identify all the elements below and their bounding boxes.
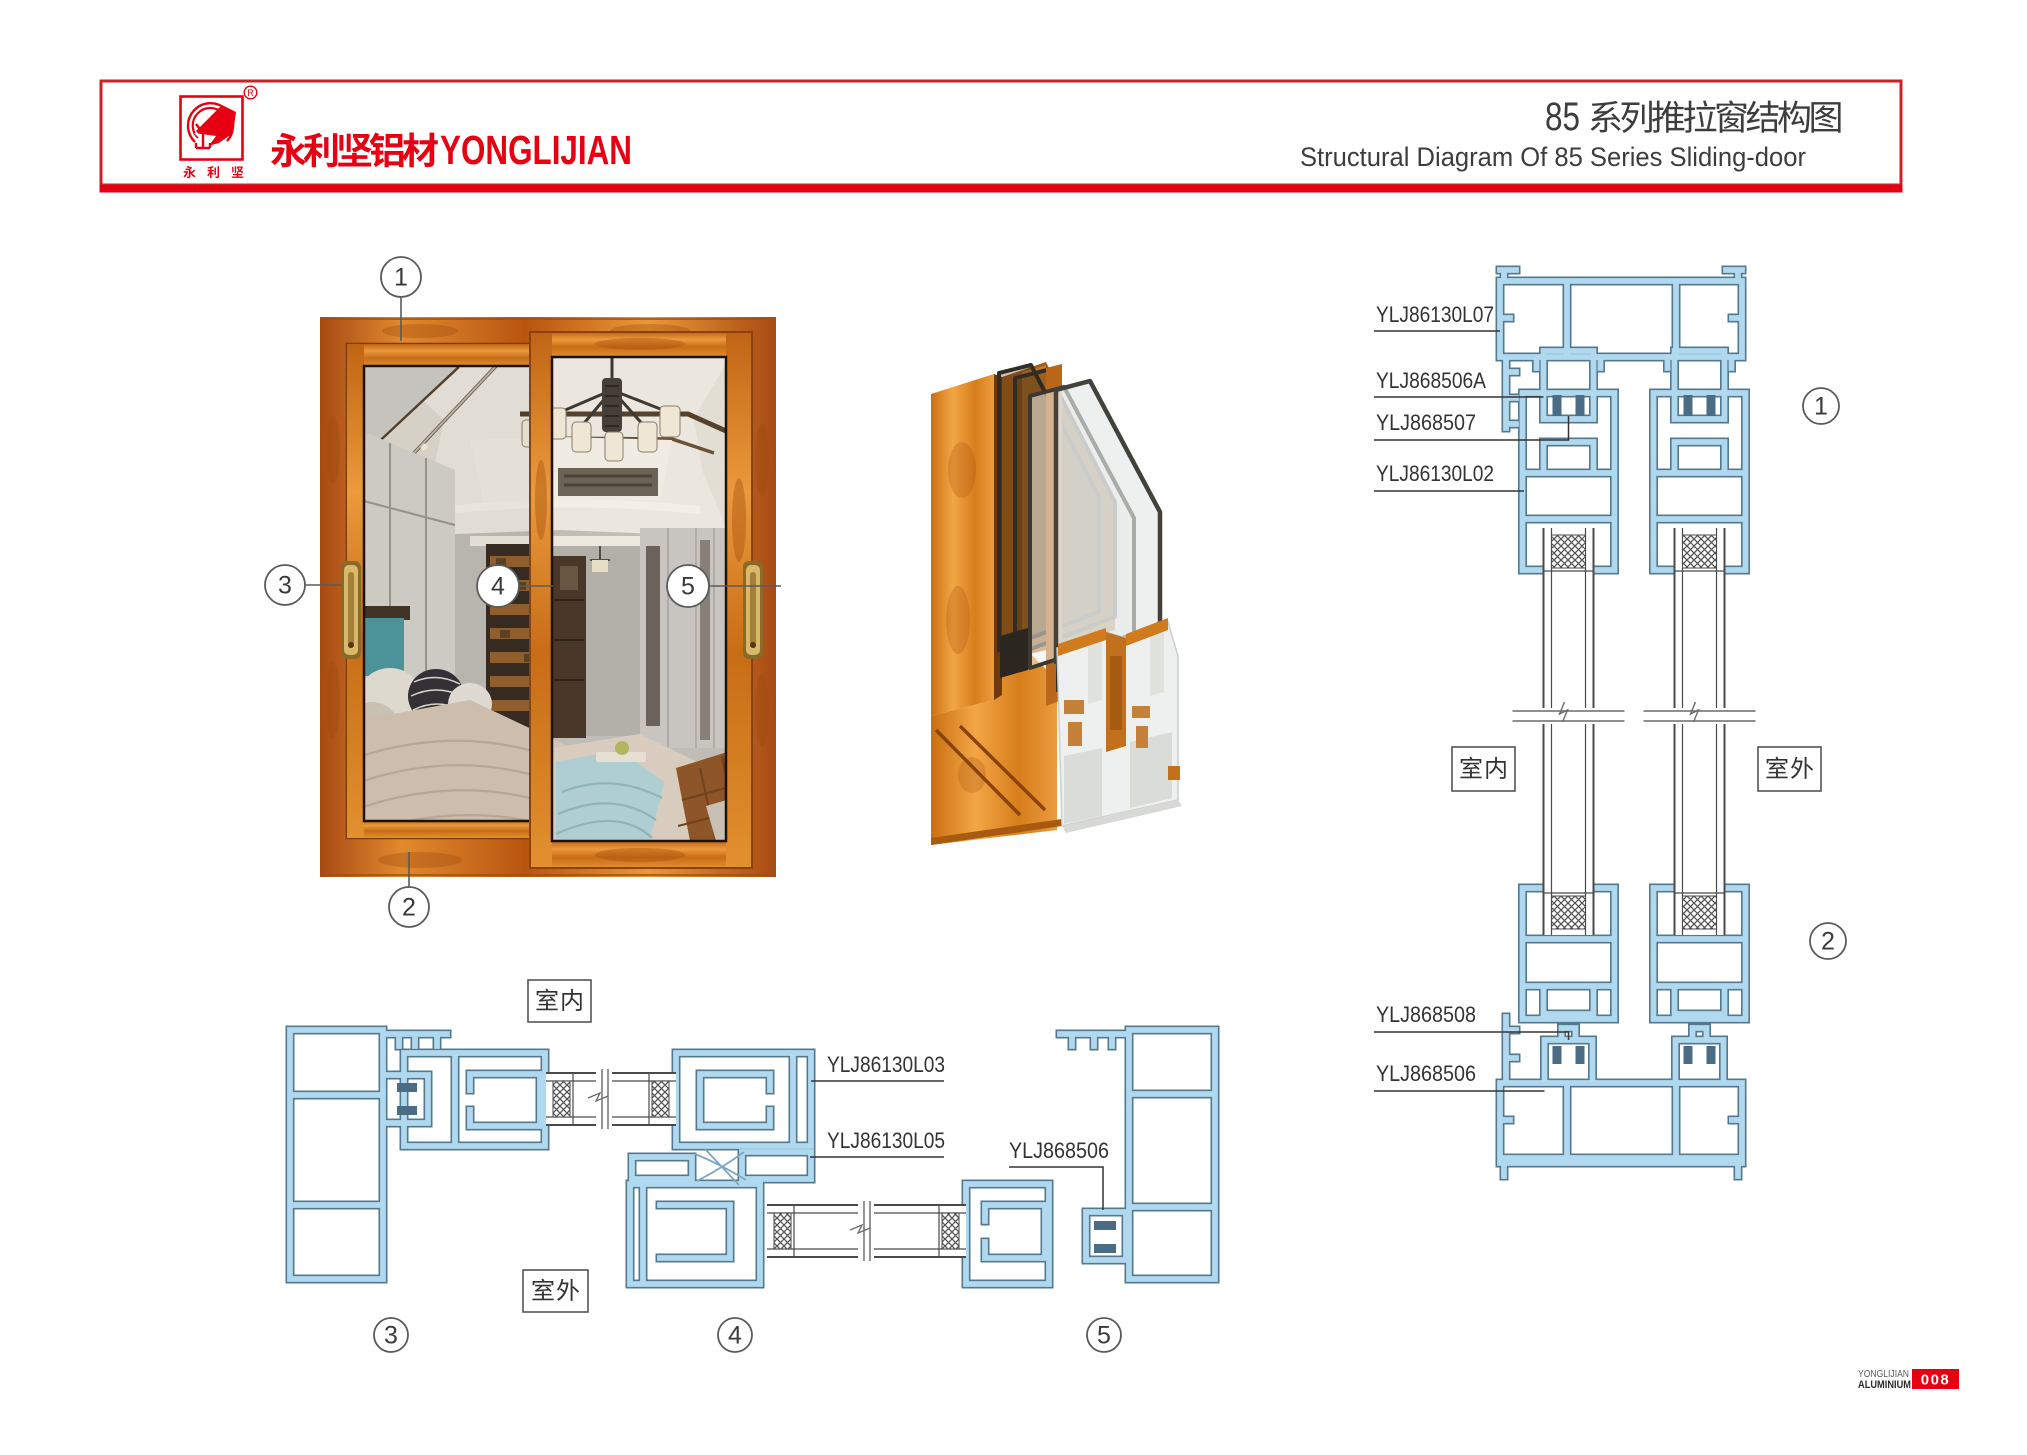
svg-text:1: 1 — [1814, 393, 1828, 421]
svg-text:YLJ86130L03: YLJ86130L03 — [827, 1052, 945, 1077]
svg-text:008: 008 — [1921, 1372, 1951, 1389]
svg-text:YONGLIJIAN: YONGLIJIAN — [440, 127, 632, 173]
svg-text:R: R — [247, 88, 254, 98]
svg-text:YLJ868507: YLJ868507 — [1376, 410, 1476, 435]
svg-text:2: 2 — [402, 894, 416, 922]
svg-text:4: 4 — [728, 1322, 742, 1350]
svg-text:5: 5 — [1097, 1322, 1111, 1350]
svg-text:3: 3 — [384, 1322, 398, 1350]
svg-text:YLJ868506: YLJ868506 — [1376, 1061, 1476, 1086]
svg-text:ALUMINIUM: ALUMINIUM — [1858, 1379, 1911, 1391]
svg-text:5: 5 — [681, 573, 695, 601]
svg-text:YLJ86130L07: YLJ86130L07 — [1376, 302, 1494, 327]
svg-text:Structural Diagram Of 85 Serie: Structural Diagram Of 85 Series Sliding-… — [1300, 142, 1806, 172]
svg-text:85: 85 — [1545, 95, 1580, 139]
svg-text:YLJ868506A: YLJ868506A — [1376, 368, 1486, 393]
svg-text:YLJ868508: YLJ868508 — [1376, 1002, 1476, 1027]
svg-text:2: 2 — [1821, 928, 1835, 956]
svg-text:YLJ86130L05: YLJ86130L05 — [827, 1128, 945, 1153]
svg-text:1: 1 — [394, 264, 408, 292]
svg-text:3: 3 — [278, 572, 292, 600]
svg-text:4: 4 — [491, 573, 505, 601]
svg-text:YLJ86130L02: YLJ86130L02 — [1376, 461, 1494, 486]
svg-text:YLJ868506: YLJ868506 — [1009, 1138, 1109, 1163]
